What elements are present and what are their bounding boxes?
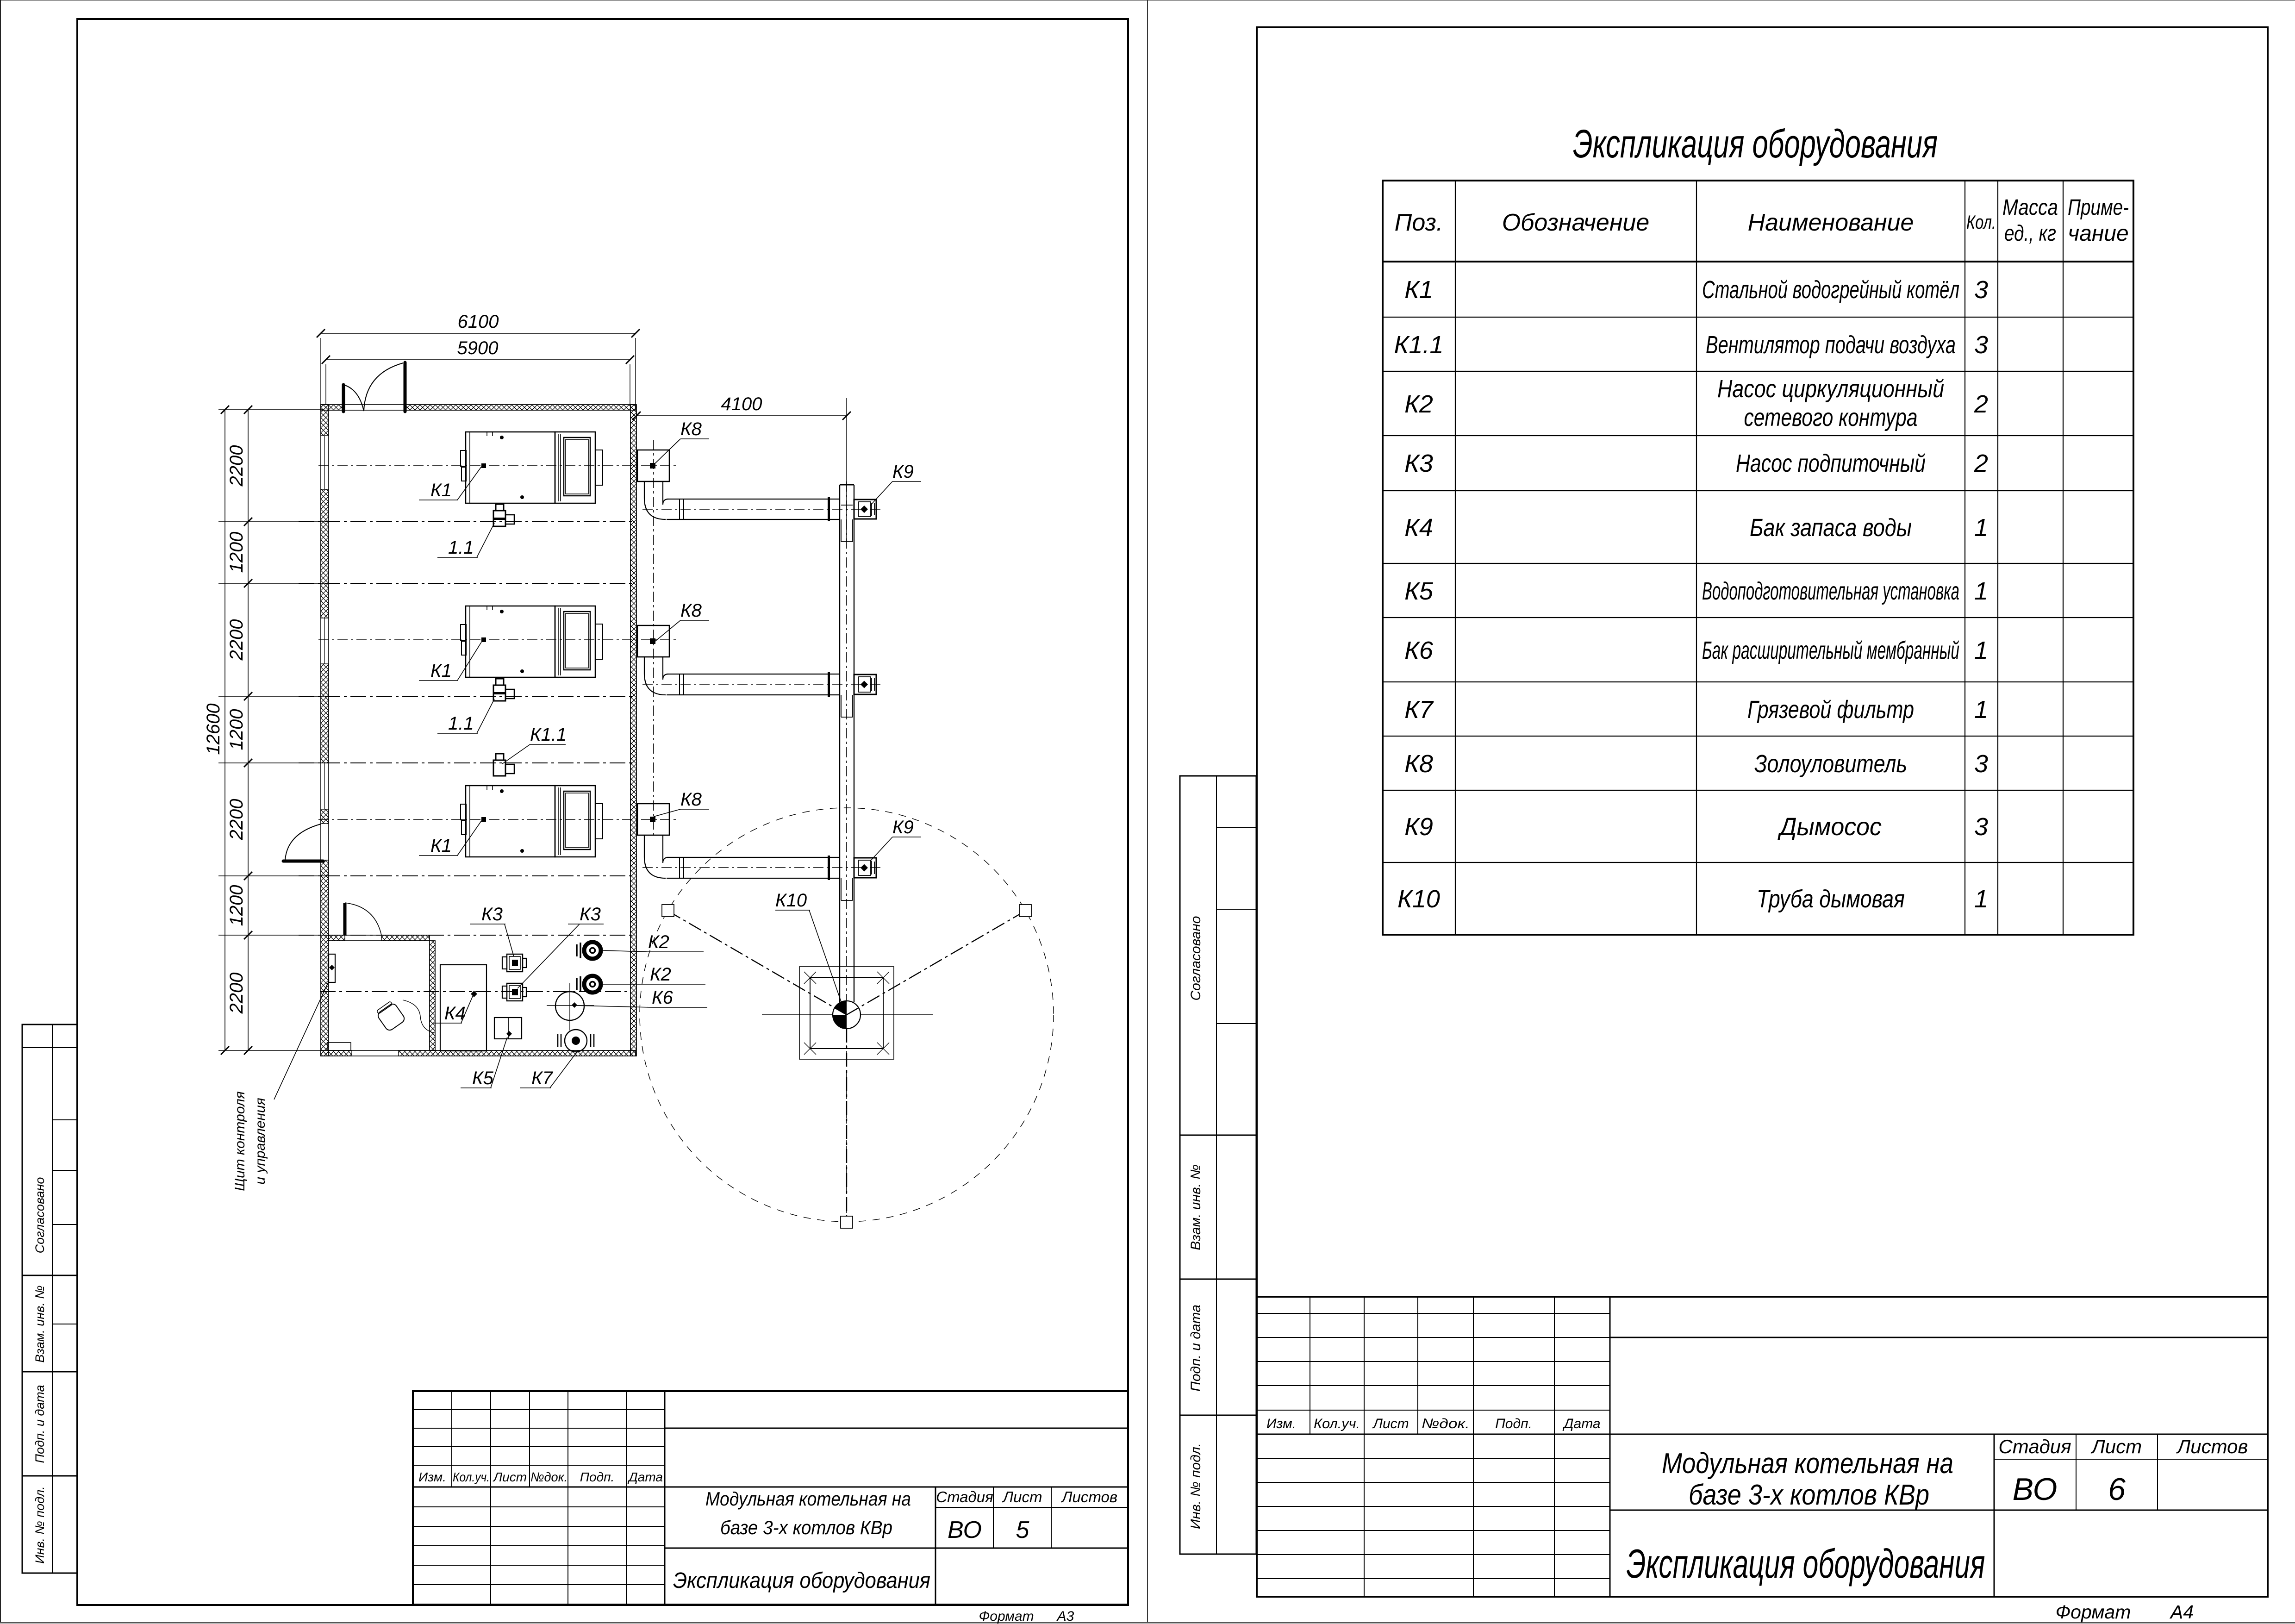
svg-text:Золоуловитель: Золоуловитель <box>1754 750 1907 778</box>
svg-text:К9: К9 <box>892 817 914 837</box>
svg-text:К8: К8 <box>680 419 702 439</box>
svg-text:Подп.: Подп. <box>580 1470 615 1484</box>
svg-text:Водоподготовительная установка: Водоподготовительная установка <box>1702 577 1959 605</box>
svg-text:Изм.: Изм. <box>1266 1416 1296 1431</box>
svg-text:2200: 2200 <box>226 799 247 841</box>
svg-text:1: 1 <box>1974 885 1988 913</box>
svg-text:К3: К3 <box>1404 450 1433 477</box>
svg-text:Кол.уч.: Кол.уч. <box>1314 1416 1360 1431</box>
svg-text:базе 3-х котлов КВр: базе 3-х котлов КВр <box>720 1517 892 1538</box>
svg-text:ВО: ВО <box>2013 1472 2058 1507</box>
svg-text:К2: К2 <box>648 932 669 952</box>
svg-text:Бак расширительный мембранный: Бак расширительный мембранный <box>1702 637 1959 664</box>
svg-text:1: 1 <box>1974 577 1988 605</box>
svg-text:А4: А4 <box>2169 1601 2194 1623</box>
svg-text:2200: 2200 <box>226 619 247 661</box>
svg-text:№док.: №док. <box>1422 1416 1470 1431</box>
svg-text:Листов: Листов <box>1061 1488 1117 1505</box>
svg-text:3: 3 <box>1974 750 1988 778</box>
svg-text:Грязевой фильтр: Грязевой фильтр <box>1747 696 1914 724</box>
svg-text:1.1: 1.1 <box>448 713 474 734</box>
svg-text:базе 3-х котлов КВр: базе 3-х котлов КВр <box>1689 1479 1929 1511</box>
svg-text:Кол.уч.: Кол.уч. <box>453 1470 490 1484</box>
svg-text:Стальной водогрейный котёл: Стальной водогрейный котёл <box>1702 276 1959 304</box>
svg-text:3: 3 <box>1974 813 1988 841</box>
svg-text:Стадия: Стадия <box>936 1488 993 1505</box>
svg-text:К10: К10 <box>775 890 807 911</box>
svg-text:Модульная котельная на: Модульная котельная на <box>705 1488 911 1510</box>
svg-text:К1: К1 <box>430 836 452 856</box>
svg-text:1: 1 <box>1974 514 1988 542</box>
svg-text:ед., кг: ед., кг <box>2004 221 2056 246</box>
svg-text:Взам. инв. №: Взам. инв. № <box>1188 1164 1204 1250</box>
svg-text:4100: 4100 <box>721 394 762 414</box>
svg-text:К2: К2 <box>1404 390 1433 418</box>
svg-text:Лист: Лист <box>2090 1436 2142 1457</box>
svg-text:К1.1: К1.1 <box>1394 331 1444 359</box>
svg-text:К1: К1 <box>430 661 452 681</box>
svg-text:К4: К4 <box>1404 514 1433 542</box>
svg-text:К5: К5 <box>472 1068 494 1088</box>
svg-text:1.1: 1.1 <box>448 537 474 558</box>
svg-text:К9: К9 <box>1404 813 1433 841</box>
svg-text:К1: К1 <box>430 480 452 500</box>
svg-text:Кол.: Кол. <box>1966 211 1996 233</box>
svg-text:Труба дымовая: Труба дымовая <box>1757 885 1905 913</box>
svg-text:Подп. и дата: Подп. и дата <box>33 1385 47 1463</box>
svg-text:Стадия: Стадия <box>1998 1436 2071 1457</box>
svg-text:1: 1 <box>1974 696 1988 724</box>
svg-text:Листов: Листов <box>2176 1436 2248 1457</box>
svg-text:и управления: и управления <box>253 1098 268 1184</box>
svg-text:Модульная котельная на: Модульная котельная на <box>1662 1448 1953 1480</box>
svg-text:Изм.: Изм. <box>418 1470 446 1484</box>
svg-text:К7: К7 <box>1404 696 1434 724</box>
svg-text:12600: 12600 <box>203 703 224 755</box>
svg-text:К2: К2 <box>650 964 671 985</box>
svg-text:5: 5 <box>1016 1517 1030 1543</box>
svg-text:Формат: Формат <box>979 1609 1034 1624</box>
svg-text:К8: К8 <box>680 789 702 810</box>
svg-text:Дымосос: Дымосос <box>1777 813 1882 841</box>
svg-text:ВО: ВО <box>948 1517 982 1543</box>
svg-text:Инв. № подл.: Инв. № подл. <box>1188 1443 1204 1529</box>
svg-text:чание: чание <box>2068 221 2128 246</box>
svg-text:Экспликация оборудования: Экспликация оборудования <box>1627 1541 1985 1587</box>
svg-text:К8: К8 <box>1404 750 1433 778</box>
svg-text:А3: А3 <box>1056 1609 1074 1624</box>
svg-text:К1.1: К1.1 <box>530 725 567 745</box>
svg-text:К7: К7 <box>531 1068 554 1088</box>
svg-text:Подп. и дата: Подп. и дата <box>1188 1305 1204 1392</box>
svg-text:К5: К5 <box>1404 577 1434 605</box>
svg-text:сетевого контура: сетевого контура <box>1744 404 1918 431</box>
svg-text:Обозначение: Обозначение <box>1502 209 1650 236</box>
svg-text:Поз.: Поз. <box>1395 209 1443 236</box>
svg-text:Согласовано: Согласовано <box>33 1177 47 1254</box>
svg-text:1200: 1200 <box>226 885 247 926</box>
svg-text:К9: К9 <box>892 462 914 482</box>
svg-text:Формат: Формат <box>2056 1601 2131 1623</box>
svg-text:2: 2 <box>1974 450 1988 477</box>
svg-text:К3: К3 <box>481 904 503 924</box>
svg-text:2: 2 <box>1974 390 1988 418</box>
svg-text:6: 6 <box>2108 1472 2126 1507</box>
svg-text:№док.: №док. <box>530 1470 568 1484</box>
svg-text:К10: К10 <box>1397 885 1440 913</box>
svg-text:Инв. № подл.: Инв. № подл. <box>33 1486 47 1564</box>
svg-text:Щит контроля: Щит контроля <box>232 1091 248 1191</box>
svg-text:Лист: Лист <box>1002 1488 1042 1505</box>
svg-text:Экспликация оборудования: Экспликация оборудования <box>673 1568 930 1593</box>
svg-text:1200: 1200 <box>226 709 247 750</box>
svg-text:К6: К6 <box>1404 637 1434 664</box>
svg-text:Вентилятор подачи воздуха: Вентилятор подачи воздуха <box>1706 331 1956 359</box>
svg-text:3: 3 <box>1974 276 1988 304</box>
svg-text:Наименование: Наименование <box>1748 209 1914 236</box>
svg-text:1200: 1200 <box>226 532 247 573</box>
svg-text:1: 1 <box>1974 637 1988 664</box>
svg-text:К3: К3 <box>580 904 601 924</box>
svg-text:3: 3 <box>1974 331 1988 359</box>
svg-text:К8: К8 <box>680 600 702 621</box>
svg-text:Подп.: Подп. <box>1495 1416 1532 1431</box>
svg-text:К1: К1 <box>1404 276 1433 304</box>
svg-text:Лист: Лист <box>1372 1416 1409 1431</box>
svg-text:2200: 2200 <box>226 445 247 487</box>
svg-text:Бак запаса воды: Бак запаса воды <box>1750 514 1912 542</box>
svg-text:2200: 2200 <box>226 973 247 1014</box>
svg-text:Насос циркуляционный: Насос циркуляционный <box>1717 375 1944 403</box>
svg-text:К6: К6 <box>652 987 674 1008</box>
svg-text:Дата: Дата <box>627 1470 663 1484</box>
svg-text:Приме-: Приме- <box>2068 195 2129 220</box>
svg-text:Лист: Лист <box>493 1470 527 1484</box>
svg-text:Экспликация оборудования: Экспликация оборудования <box>1573 122 1938 166</box>
svg-text:Насос подпиточный: Насос подпиточный <box>1736 450 1926 477</box>
svg-text:Дата: Дата <box>1562 1416 1600 1431</box>
svg-text:Масса: Масса <box>2002 195 2058 220</box>
svg-text:Согласовано: Согласовано <box>1188 916 1204 1001</box>
svg-text:6100: 6100 <box>458 312 499 332</box>
svg-text:5900: 5900 <box>457 338 499 358</box>
svg-text:Взам. инв. №: Взам. инв. № <box>33 1286 47 1363</box>
